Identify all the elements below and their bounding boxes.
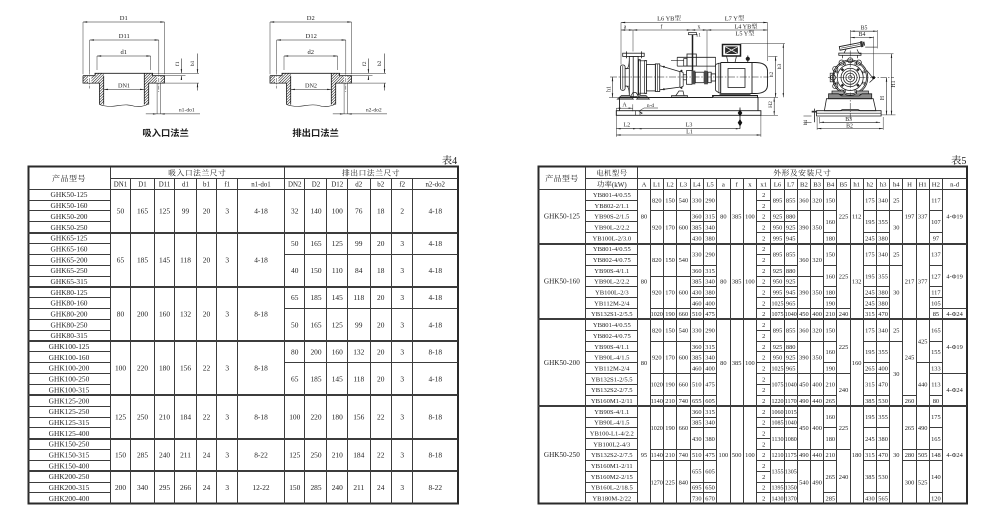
svg-text:340: 340	[878, 327, 888, 334]
svg-text:315: 315	[705, 409, 715, 416]
svg-text:8-18: 8-18	[428, 347, 442, 356]
svg-text:165: 165	[931, 436, 941, 443]
svg-text:265: 265	[826, 474, 836, 481]
svg-text:290: 290	[705, 252, 715, 259]
svg-text:1370: 1370	[785, 496, 797, 503]
svg-text:156: 156	[180, 364, 191, 373]
svg-text:400: 400	[812, 311, 822, 318]
svg-text:2: 2	[762, 365, 765, 372]
svg-text:920: 920	[652, 224, 662, 231]
svg-text:995: 995	[773, 290, 783, 297]
svg-text:8-18: 8-18	[254, 310, 268, 319]
svg-text:80: 80	[291, 347, 299, 356]
svg-text:22: 22	[377, 413, 385, 422]
svg-text:3: 3	[400, 293, 404, 302]
svg-text:740: 740	[679, 398, 689, 405]
svg-text:240: 240	[839, 474, 849, 481]
svg-text:140: 140	[931, 474, 941, 481]
svg-text:2: 2	[400, 206, 404, 215]
svg-text:3: 3	[225, 206, 229, 215]
svg-text:210: 210	[826, 452, 836, 459]
svg-text:385: 385	[692, 279, 702, 286]
svg-text:360: 360	[692, 214, 702, 221]
svg-text:4-18: 4-18	[428, 266, 442, 275]
svg-text:355: 355	[878, 219, 888, 226]
svg-text:211: 211	[180, 450, 191, 459]
svg-text:112: 112	[852, 214, 861, 221]
svg-text:210: 210	[826, 382, 836, 389]
svg-text:2: 2	[762, 409, 765, 416]
svg-text:YB801-4/0.55: YB801-4/0.55	[593, 322, 632, 329]
svg-text:100: 100	[289, 413, 300, 422]
svg-text:385: 385	[692, 224, 702, 231]
svg-text:1170: 1170	[785, 398, 797, 405]
svg-text:150: 150	[826, 197, 836, 204]
svg-text:925: 925	[773, 344, 783, 351]
svg-text:2: 2	[762, 463, 765, 470]
svg-text:GHK150-400: GHK150-400	[49, 461, 90, 470]
svg-text:2: 2	[762, 431, 765, 438]
svg-text:3: 3	[400, 483, 404, 492]
svg-text:655: 655	[692, 398, 702, 405]
svg-text:340: 340	[705, 420, 715, 427]
svg-text:113: 113	[931, 382, 940, 389]
svg-text:GHK80-125: GHK80-125	[51, 288, 88, 297]
svg-text:197: 197	[905, 214, 915, 221]
svg-text:2: 2	[762, 496, 765, 503]
svg-text:510: 510	[692, 452, 702, 459]
svg-text:925: 925	[773, 268, 783, 275]
svg-text:120: 120	[931, 496, 941, 503]
svg-text:150: 150	[665, 257, 675, 264]
svg-text:195: 195	[865, 414, 875, 421]
svg-text:DN1: DN1	[114, 182, 128, 189]
svg-text:8-18: 8-18	[428, 413, 442, 422]
svg-text:2: 2	[762, 398, 765, 405]
svg-text:995: 995	[773, 235, 783, 242]
svg-text:3: 3	[400, 347, 404, 356]
svg-text:GHK100-200: GHK100-200	[49, 364, 90, 373]
svg-text:195: 195	[865, 273, 875, 280]
svg-text:160: 160	[332, 347, 343, 356]
svg-text:100: 100	[115, 364, 126, 373]
svg-text:2: 2	[762, 214, 765, 221]
svg-text:895: 895	[773, 252, 783, 259]
svg-text:1025: 1025	[772, 365, 784, 372]
svg-text:180: 180	[826, 235, 836, 242]
svg-text:490: 490	[799, 452, 809, 459]
svg-text:100: 100	[745, 452, 755, 459]
svg-text:8-18: 8-18	[428, 450, 442, 459]
svg-text:18: 18	[377, 266, 385, 275]
svg-text:470: 470	[878, 382, 888, 389]
svg-text:150: 150	[289, 483, 300, 492]
svg-text:315: 315	[865, 452, 875, 459]
svg-text:150: 150	[310, 266, 321, 275]
svg-text:200: 200	[310, 347, 321, 356]
svg-text:540: 540	[679, 257, 689, 264]
svg-text:3: 3	[225, 450, 229, 459]
svg-text:H2: H2	[768, 101, 774, 108]
svg-text:b1: b1	[190, 60, 196, 66]
svg-text:315: 315	[705, 344, 715, 351]
svg-text:GHK80-250: GHK80-250	[51, 320, 88, 329]
svg-text:95: 95	[641, 452, 647, 459]
svg-text:820: 820	[652, 257, 662, 264]
svg-text:L3: L3	[680, 182, 688, 189]
svg-text:80: 80	[933, 398, 939, 405]
svg-text:470: 470	[878, 452, 888, 459]
svg-text:A: A	[622, 102, 627, 108]
svg-text:920: 920	[652, 355, 662, 362]
svg-text:500: 500	[732, 452, 742, 459]
svg-text:950: 950	[773, 355, 783, 362]
svg-text:132: 132	[353, 347, 364, 356]
svg-text:YB90S-4/1.1: YB90S-4/1.1	[594, 344, 629, 351]
svg-text:YB100L-2/3: YB100L-2/3	[595, 290, 629, 297]
svg-text:145: 145	[159, 255, 170, 264]
svg-text:20: 20	[203, 310, 211, 319]
svg-text:h3: h3	[777, 64, 783, 70]
svg-text:GHK65-315: GHK65-315	[51, 277, 88, 286]
svg-text:245: 245	[865, 436, 875, 443]
svg-text:355: 355	[878, 349, 888, 356]
svg-text:2: 2	[762, 322, 765, 329]
svg-text:5: 5	[961, 156, 966, 167]
svg-text:YB180M-2/22: YB180M-2/22	[592, 496, 631, 503]
svg-text:24: 24	[377, 483, 385, 492]
svg-text:315: 315	[705, 268, 715, 275]
svg-text:12-22: 12-22	[252, 483, 270, 492]
svg-text:30: 30	[893, 452, 899, 459]
svg-text:H: H	[907, 182, 912, 189]
svg-text:GHK100-250: GHK100-250	[49, 375, 90, 384]
svg-text:330: 330	[692, 252, 702, 259]
svg-text:80: 80	[641, 360, 647, 367]
svg-text:YB100L-2/3.0: YB100L-2/3.0	[592, 235, 631, 242]
svg-text:H2: H2	[932, 182, 940, 189]
svg-text:148: 148	[931, 452, 941, 459]
svg-text:B3: B3	[813, 182, 821, 189]
svg-text:350: 350	[812, 290, 822, 297]
svg-text:D1: D1	[138, 182, 147, 189]
svg-text:GHK125-315: GHK125-315	[49, 418, 90, 427]
svg-text:2: 2	[762, 300, 765, 307]
svg-text:380: 380	[705, 235, 715, 242]
svg-text:385: 385	[732, 214, 742, 221]
svg-text:320: 320	[812, 197, 822, 204]
svg-text:337: 337	[918, 214, 928, 221]
svg-text:965: 965	[786, 365, 796, 372]
svg-text:YB90L-2/2.2: YB90L-2/2.2	[594, 224, 629, 231]
svg-text:84: 84	[355, 266, 363, 275]
svg-text:b2: b2	[377, 60, 383, 66]
svg-text:3: 3	[225, 364, 229, 373]
svg-text:140: 140	[310, 206, 321, 215]
svg-text:A: A	[642, 182, 647, 189]
svg-text:GHK50-125: GHK50-125	[51, 190, 88, 199]
svg-text:340: 340	[137, 483, 148, 492]
svg-text:GHK50-160: GHK50-160	[544, 278, 580, 286]
svg-text:h1: h1	[606, 86, 612, 92]
svg-text:L4: L4	[693, 182, 701, 189]
svg-text:820: 820	[652, 197, 662, 204]
svg-text:24: 24	[203, 450, 211, 459]
svg-text:YB100-L1-4/2.2: YB100-L1-4/2.2	[590, 431, 634, 438]
svg-text:85: 85	[933, 311, 939, 318]
svg-text:3: 3	[400, 413, 404, 422]
svg-text:100: 100	[332, 206, 343, 215]
svg-text:210: 210	[159, 413, 170, 422]
svg-text:360: 360	[799, 257, 809, 264]
svg-text:670: 670	[705, 496, 715, 503]
svg-text:24: 24	[203, 483, 211, 492]
svg-text:2: 2	[762, 235, 765, 242]
svg-text:1270: 1270	[651, 479, 663, 486]
svg-text:170: 170	[665, 290, 675, 297]
svg-text:475: 475	[705, 311, 715, 318]
svg-text:285: 285	[826, 496, 836, 503]
svg-text:217: 217	[905, 279, 915, 286]
svg-text:100: 100	[745, 214, 755, 221]
svg-text:160: 160	[826, 349, 836, 356]
svg-text:210: 210	[332, 450, 343, 459]
svg-text:965: 965	[786, 300, 796, 307]
svg-text:400: 400	[705, 300, 715, 307]
svg-text:n1-do1: n1-do1	[251, 182, 271, 189]
svg-text:125: 125	[159, 206, 170, 215]
svg-text:125: 125	[332, 320, 343, 329]
svg-text:127: 127	[931, 273, 941, 280]
svg-text:380: 380	[705, 436, 715, 443]
svg-text:360: 360	[799, 327, 809, 334]
svg-text:YB90L-2/2.2: YB90L-2/2.2	[594, 279, 629, 286]
svg-text:118: 118	[353, 375, 364, 384]
svg-text:GHK50-125: GHK50-125	[544, 213, 580, 221]
svg-text:GHK50-200: GHK50-200	[544, 359, 580, 367]
svg-text:99: 99	[355, 239, 363, 248]
svg-text:117: 117	[931, 290, 941, 297]
svg-text:380: 380	[878, 290, 888, 297]
svg-text:YB802-2/1.1: YB802-2/1.1	[594, 203, 629, 210]
svg-text:920: 920	[652, 290, 662, 297]
svg-text:150: 150	[665, 327, 675, 334]
svg-text:165: 165	[931, 327, 941, 334]
svg-text:260: 260	[905, 398, 915, 405]
svg-text:8-18: 8-18	[254, 413, 268, 422]
svg-text:99: 99	[182, 206, 190, 215]
svg-text:175: 175	[865, 327, 875, 334]
svg-text:820: 820	[652, 327, 662, 334]
svg-text:f: f	[736, 182, 739, 189]
svg-text:3: 3	[400, 266, 404, 275]
svg-text:20: 20	[203, 255, 211, 264]
svg-text:20: 20	[377, 347, 385, 356]
svg-text:730: 730	[692, 496, 702, 503]
svg-text:855: 855	[786, 327, 796, 334]
svg-text:220: 220	[310, 413, 321, 422]
svg-text:450: 450	[799, 311, 809, 318]
svg-text:250: 250	[137, 413, 148, 422]
svg-text:1395: 1395	[772, 485, 784, 492]
svg-text:n2-do2: n2-do2	[366, 108, 382, 114]
svg-text:510: 510	[692, 382, 702, 389]
svg-text:GHK80-160: GHK80-160	[51, 299, 88, 308]
svg-text:160: 160	[159, 310, 170, 319]
svg-text:118: 118	[180, 255, 191, 264]
svg-text:4-18: 4-18	[428, 206, 442, 215]
svg-text:660: 660	[679, 425, 689, 432]
svg-text:240: 240	[332, 483, 343, 492]
svg-text:470: 470	[878, 311, 888, 318]
svg-text:117: 117	[931, 197, 941, 204]
svg-text:280: 280	[905, 452, 915, 459]
svg-text:YB90S-4/1.1: YB90S-4/1.1	[594, 268, 629, 275]
svg-text:390: 390	[799, 224, 809, 231]
svg-text:L6 YB: L6 YB	[657, 15, 674, 22]
svg-text:D2: D2	[307, 15, 315, 22]
svg-text:GHK200-315: GHK200-315	[49, 483, 90, 492]
svg-text:YB132S2-2/7.5: YB132S2-2/7.5	[591, 452, 633, 459]
svg-text:h3: h3	[880, 182, 887, 189]
svg-text:100: 100	[745, 360, 755, 367]
svg-text:99: 99	[355, 320, 363, 329]
svg-text:240: 240	[839, 311, 849, 318]
svg-text:360: 360	[692, 344, 702, 351]
svg-text:156: 156	[353, 413, 364, 422]
svg-text:1305: 1305	[785, 468, 797, 475]
svg-text:2: 2	[762, 192, 765, 199]
svg-text:32: 32	[291, 206, 299, 215]
svg-text:320: 320	[812, 257, 822, 264]
svg-text:B4: B4	[859, 32, 866, 38]
svg-text:490: 490	[918, 425, 928, 432]
svg-text:1075: 1075	[772, 311, 784, 318]
svg-text:YB90L-4/1.5: YB90L-4/1.5	[594, 420, 630, 427]
svg-text:d2: d2	[355, 182, 362, 189]
svg-text:YB100L2-4/3: YB100L2-4/3	[593, 441, 631, 448]
svg-text:190: 190	[826, 300, 836, 307]
svg-text:20: 20	[377, 375, 385, 384]
svg-text:d1: d1	[182, 182, 189, 189]
svg-text:4-Φ24: 4-Φ24	[946, 311, 963, 318]
svg-text:190: 190	[665, 311, 675, 318]
svg-text:340: 340	[878, 252, 888, 259]
svg-text:1060: 1060	[772, 409, 784, 416]
svg-text:225: 225	[839, 273, 849, 280]
svg-text:4-Φ24: 4-Φ24	[946, 387, 963, 394]
svg-text:660: 660	[679, 382, 689, 389]
svg-text:880: 880	[786, 268, 796, 275]
svg-text:D12: D12	[331, 182, 343, 189]
svg-text:97: 97	[933, 235, 940, 242]
svg-text:160: 160	[826, 414, 836, 421]
svg-text:YB132S2-2/7.5: YB132S2-2/7.5	[591, 387, 633, 394]
svg-text:DN2: DN2	[305, 82, 317, 89]
svg-text:600: 600	[679, 355, 689, 362]
svg-text:175: 175	[865, 252, 875, 259]
svg-text:290: 290	[705, 327, 715, 334]
svg-text:YB160M1-2/11: YB160M1-2/11	[591, 463, 633, 470]
svg-text:30: 30	[893, 224, 899, 231]
svg-text:133: 133	[931, 365, 941, 372]
svg-text:30: 30	[893, 371, 899, 378]
svg-text:4-Φ19: 4-Φ19	[946, 214, 962, 221]
svg-text:GHK65-160: GHK65-160	[51, 244, 88, 253]
svg-text:400: 400	[812, 382, 822, 389]
svg-text:20: 20	[377, 293, 385, 302]
svg-text:150: 150	[826, 327, 836, 334]
svg-text:1075: 1075	[772, 382, 784, 389]
svg-text:GHK50-160: GHK50-160	[51, 201, 88, 210]
svg-text:L1: L1	[686, 129, 693, 135]
svg-text:430: 430	[865, 496, 875, 503]
svg-text:265: 265	[826, 398, 836, 405]
svg-text:3: 3	[225, 310, 229, 319]
svg-text:1430: 1430	[772, 496, 784, 503]
svg-text:250: 250	[310, 450, 321, 459]
svg-text:100: 100	[745, 279, 755, 286]
svg-text:3: 3	[400, 239, 404, 248]
svg-text:h1: h1	[853, 182, 860, 189]
svg-text:1085: 1085	[772, 420, 784, 427]
svg-text:925: 925	[786, 224, 796, 231]
svg-text:895: 895	[773, 327, 783, 334]
svg-text:210: 210	[665, 398, 675, 405]
svg-text:L5: L5	[706, 182, 714, 189]
svg-text:x1: x1	[760, 182, 767, 189]
svg-text:380: 380	[705, 290, 715, 297]
svg-text:1140: 1140	[651, 398, 663, 405]
svg-text:GHK65-125: GHK65-125	[51, 234, 88, 243]
svg-text:B5: B5	[861, 25, 868, 31]
svg-text:160: 160	[826, 219, 836, 226]
svg-text:3: 3	[400, 320, 404, 329]
svg-text:YB801-4/0.55: YB801-4/0.55	[593, 192, 632, 199]
svg-text:4-Φ19: 4-Φ19	[946, 344, 962, 351]
svg-text:490: 490	[799, 398, 809, 405]
svg-text:340: 340	[705, 224, 715, 231]
svg-text:8-18: 8-18	[254, 364, 268, 373]
svg-text:GHK100-315: GHK100-315	[49, 385, 90, 394]
svg-text:B2: B2	[846, 123, 853, 129]
svg-text:x: x	[748, 182, 752, 189]
svg-text:740: 740	[679, 452, 689, 459]
svg-text:180: 180	[826, 290, 836, 297]
svg-text:430: 430	[692, 290, 702, 297]
svg-text:3: 3	[225, 413, 229, 422]
svg-text:4-18: 4-18	[254, 255, 268, 264]
svg-text:265: 265	[905, 425, 915, 432]
svg-text:2: 2	[762, 452, 765, 459]
svg-text:380: 380	[878, 300, 888, 307]
svg-text:150: 150	[665, 197, 675, 204]
svg-text:1175: 1175	[785, 452, 797, 459]
svg-text:80: 80	[720, 279, 726, 286]
svg-text:GHK200-250: GHK200-250	[49, 472, 90, 481]
svg-text:L1: L1	[653, 182, 660, 189]
svg-text:GHK150-250: GHK150-250	[49, 440, 90, 449]
svg-text:855: 855	[786, 252, 796, 259]
svg-text:YB802-4/0.75: YB802-4/0.75	[593, 257, 632, 264]
svg-text:25: 25	[893, 252, 899, 259]
svg-text:380: 380	[878, 235, 888, 242]
svg-text:266: 266	[180, 483, 191, 492]
svg-text:160: 160	[852, 360, 862, 367]
svg-text:H: H	[880, 95, 886, 100]
svg-text:f2: f2	[361, 61, 368, 66]
svg-text:GHK125-250: GHK125-250	[49, 407, 90, 416]
